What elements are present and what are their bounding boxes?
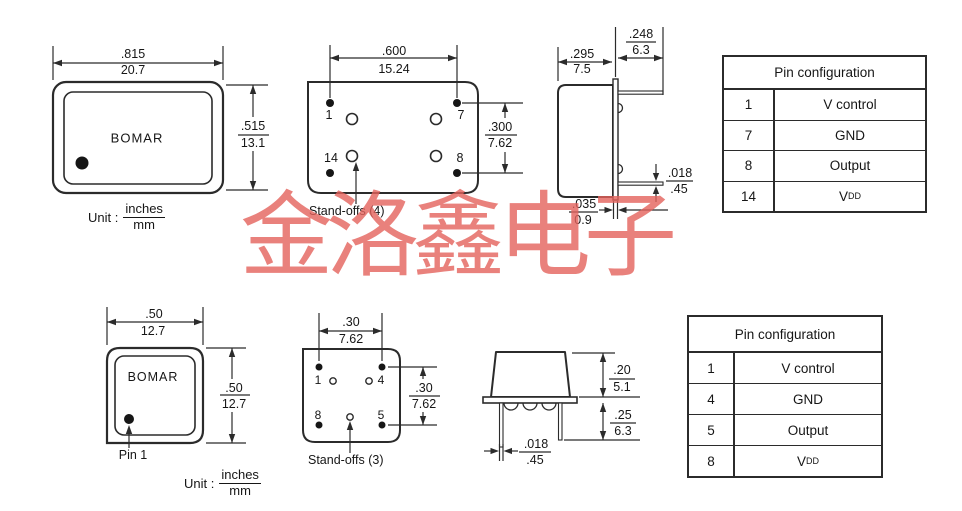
dim-bot-front-width-in: .50 (145, 308, 162, 321)
pin-function-cell: VDD (735, 446, 881, 476)
pin-function-cell: GND (735, 384, 881, 414)
pin-function-subscript: DD (848, 192, 861, 201)
pin-table-title: Pin configuration (724, 57, 925, 90)
pin-function-text: Output (788, 423, 829, 438)
pin-function-text: V control (781, 361, 834, 376)
pin-number-cell: 8 (724, 151, 775, 181)
unit-label: Unit : (184, 476, 214, 491)
pin-number-cell: 5 (689, 415, 735, 445)
pin-function-text: Output (830, 158, 871, 173)
pin-number-1: 1 (326, 109, 333, 122)
unit-fraction: inches mm (219, 468, 261, 499)
dim-bot-side-bodyheight-mm: 5.1 (613, 381, 630, 394)
dim-top-bottomview-height-in: .300 (488, 121, 512, 134)
dim-top-side-leadlen-in: .248 (629, 28, 653, 41)
dim-bot-side-leadthick-in: .018 (524, 438, 548, 451)
unit-note-bottom: Unit : inches mm (184, 468, 261, 499)
pin-function-cell: V control (735, 353, 881, 383)
standoffs-callout-top: Stand-offs (4) (309, 205, 385, 218)
dim-bot-side-leadlen-in: .25 (614, 409, 631, 422)
pin-number-1: 1 (315, 374, 322, 386)
dim-bot-front-height-in: .50 (225, 382, 242, 395)
pin-number-8: 8 (457, 152, 464, 165)
dim-top-front-width-mm: 20.7 (121, 64, 145, 77)
pin-function-text: V (797, 454, 806, 469)
dim-top-bottomview-width-in: .600 (382, 45, 406, 58)
brand-label-top: BOMAR (111, 131, 164, 146)
dim-top-side-bodywidth-in: .295 (570, 48, 594, 61)
dim-top-bottomview-height-mm: 7.62 (488, 137, 512, 150)
dim-top-front-height-in: .515 (241, 120, 265, 133)
brand-label-bottom: BOMAR (128, 370, 179, 384)
unit-denominator: mm (229, 484, 251, 499)
pin-table-title: Pin configuration (689, 317, 881, 353)
pin-configuration-table-top: Pin configuration 1 V control 7 GND 8 Ou… (722, 55, 927, 213)
dim-top-side-bodywidth-mm: 7.5 (573, 63, 590, 76)
unit-numerator: inches (219, 468, 261, 484)
dim-top-front-height-mm: 13.1 (241, 137, 265, 150)
unit-numerator: inches (123, 202, 165, 218)
pin1-callout: Pin 1 (119, 449, 148, 462)
standoffs-callout-bottom: Stand-offs (3) (308, 454, 384, 467)
pin-number-14: 14 (324, 152, 338, 165)
dim-bot-bottomview-height-mm: 7.62 (412, 398, 436, 411)
pin-configuration-table-bottom: Pin configuration 1 V control 4 GND 5 Ou… (687, 315, 883, 478)
dim-bot-bottomview-width-in: .30 (342, 316, 359, 329)
pin-number-cell: 4 (689, 384, 735, 414)
dim-top-side-basethick-mm: 0.9 (574, 214, 591, 227)
pin-table-row: 5 Output (689, 414, 881, 445)
dim-bot-bottomview-height-in: .30 (415, 382, 432, 395)
dim-bot-side-bodyheight-in: .20 (613, 364, 630, 377)
unit-note-top: Unit : inches mm (88, 202, 165, 233)
dim-bot-front-height-mm: 12.7 (222, 398, 246, 411)
pin-function-cell: VDD (775, 182, 925, 212)
dim-bot-side-leadlen-mm: 6.3 (614, 425, 631, 438)
pin-number-8: 8 (315, 409, 322, 421)
pin-function-subscript: DD (806, 457, 819, 466)
dim-top-side-leadthick-mm: .45 (670, 183, 687, 196)
datasheet-drawing-page: BOMAR .815 20.7 .515 13.1 Unit : inches … (0, 0, 962, 511)
pin-function-cell: V control (775, 90, 925, 120)
pin-function-cell: Output (775, 151, 925, 181)
pin-number-4: 4 (378, 374, 385, 386)
pin-table-row: 1 V control (724, 90, 925, 120)
pin-number-cell: 8 (689, 446, 735, 476)
pin-function-text: GND (835, 128, 865, 143)
unit-denominator: mm (133, 218, 155, 233)
pin-function-text: V control (823, 97, 876, 112)
unit-fraction: inches mm (123, 202, 165, 233)
pin-function-text: GND (793, 392, 823, 407)
dim-bot-bottomview-width-mm: 7.62 (339, 333, 363, 346)
pin-number-cell: 14 (724, 182, 775, 212)
dim-top-front-width-in: .815 (121, 48, 145, 61)
pin-table-row: 8 VDD (689, 445, 881, 476)
pin-function-cell: Output (735, 415, 881, 445)
dim-bot-front-width-mm: 12.7 (141, 325, 165, 338)
pin-table-row: 7 GND (724, 120, 925, 151)
dim-bot-side-leadthick-mm: .45 (526, 454, 543, 467)
pin-number-7: 7 (458, 109, 465, 122)
pin-function-cell: GND (775, 121, 925, 151)
unit-label: Unit : (88, 210, 118, 225)
dim-top-side-leadlen-mm: 6.3 (632, 44, 649, 57)
pin-number-cell: 1 (689, 353, 735, 383)
pin-table-row: 1 V control (689, 353, 881, 383)
dim-top-side-leadthick-in: .018 (668, 167, 692, 180)
dim-top-bottomview-width-mm: 15.24 (378, 63, 409, 76)
pin-number-5: 5 (378, 409, 385, 421)
dim-top-side-basethick-in: .035 (572, 198, 596, 211)
pin-table-row: 14 VDD (724, 181, 925, 212)
pin-number-cell: 7 (724, 121, 775, 151)
pin-table-row: 8 Output (724, 150, 925, 181)
pin-number-cell: 1 (724, 90, 775, 120)
pin-function-text: V (839, 189, 848, 204)
pin-table-row: 4 GND (689, 383, 881, 414)
